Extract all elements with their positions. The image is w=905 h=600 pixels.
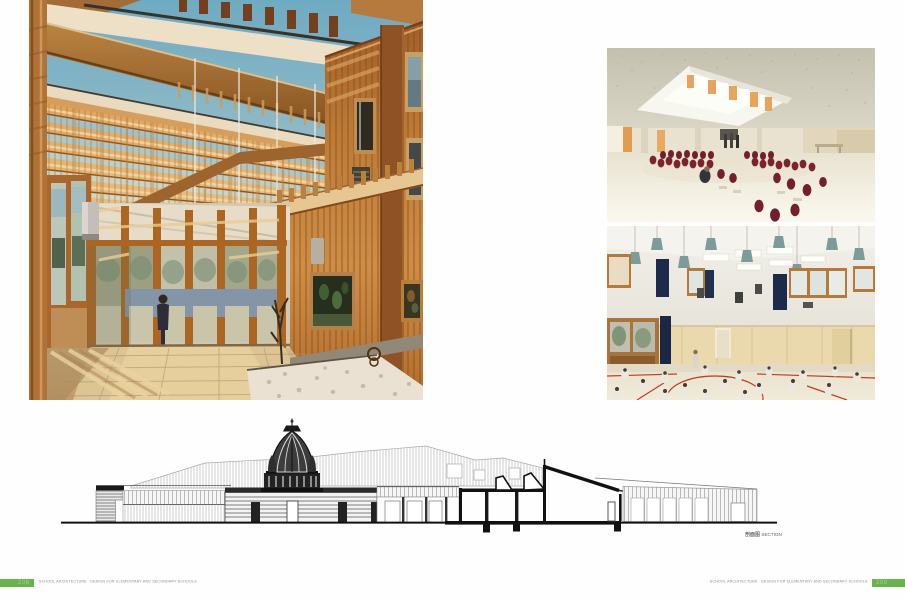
svg-text:剖面图 SECTION: 剖面图 SECTION xyxy=(745,531,782,538)
